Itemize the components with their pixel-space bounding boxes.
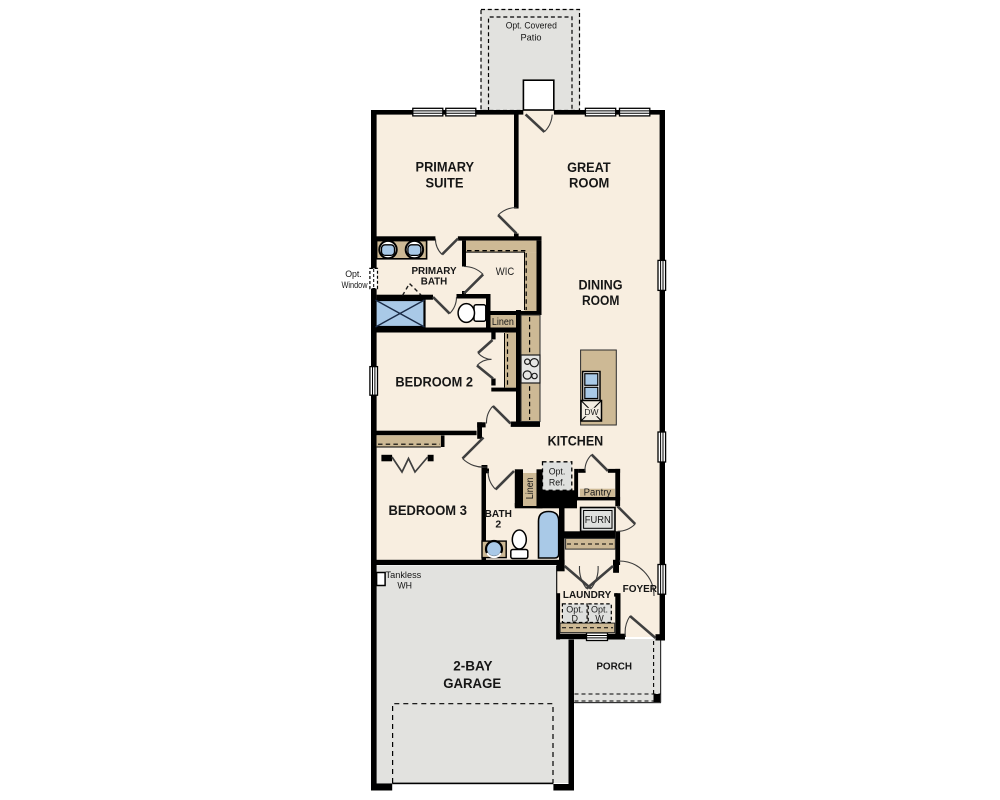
svg-text:Linen: Linen	[492, 317, 514, 328]
svg-text:Linen: Linen	[525, 477, 536, 499]
svg-text:GARAGE: GARAGE	[443, 676, 501, 691]
svg-text:DINING: DINING	[578, 278, 622, 293]
svg-text:W: W	[595, 613, 604, 623]
svg-text:FURN: FURN	[585, 515, 611, 526]
svg-text:BATH: BATH	[421, 275, 448, 287]
svg-text:2-BAY: 2-BAY	[453, 659, 492, 674]
svg-text:WIC: WIC	[496, 266, 515, 278]
svg-text:Pantry: Pantry	[584, 488, 612, 499]
svg-text:Ref.: Ref.	[549, 478, 565, 488]
svg-text:DW: DW	[584, 407, 598, 417]
svg-text:Opt. Covered: Opt. Covered	[506, 20, 557, 30]
svg-text:2: 2	[495, 518, 501, 530]
svg-text:BEDROOM 3: BEDROOM 3	[389, 503, 467, 518]
svg-text:Patio: Patio	[521, 32, 542, 42]
svg-text:PORCH: PORCH	[596, 661, 632, 673]
svg-text:ROOM: ROOM	[569, 176, 609, 191]
svg-text:WH: WH	[397, 581, 412, 591]
svg-text:Tankless: Tankless	[386, 570, 422, 580]
svg-text:KITCHEN: KITCHEN	[548, 433, 604, 448]
svg-text:SUITE: SUITE	[426, 176, 464, 191]
svg-text:Opt.: Opt.	[345, 269, 362, 279]
svg-text:Window: Window	[341, 280, 368, 290]
svg-text:LAUNDRY: LAUNDRY	[563, 589, 611, 601]
svg-text:BEDROOM 2: BEDROOM 2	[395, 375, 473, 390]
svg-text:ROOM: ROOM	[582, 293, 619, 308]
svg-text:D: D	[571, 613, 578, 623]
svg-text:GREAT: GREAT	[567, 160, 611, 175]
svg-text:Opt.: Opt.	[549, 467, 566, 477]
svg-text:PRIMARY: PRIMARY	[416, 160, 475, 175]
svg-text:FOYER: FOYER	[623, 583, 658, 595]
